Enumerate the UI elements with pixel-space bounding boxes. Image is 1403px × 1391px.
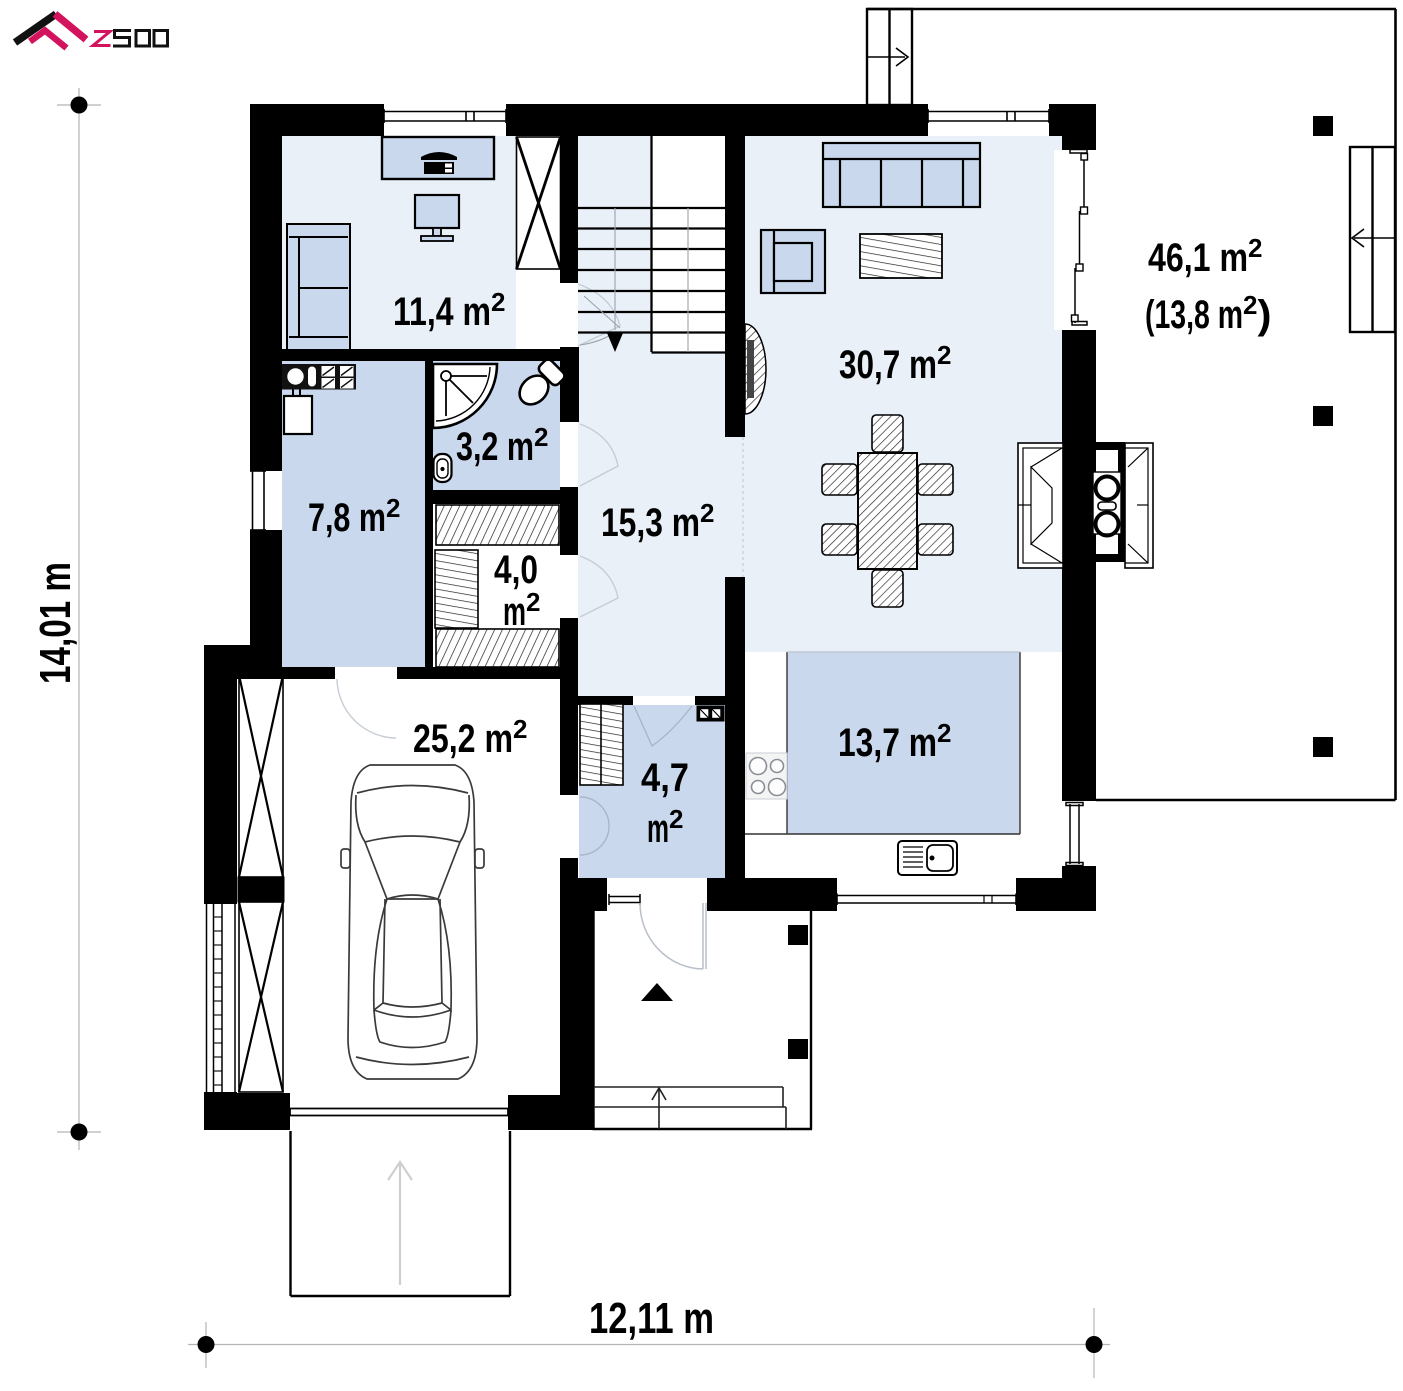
svg-text:11,4 m2: 11,4 m2 bbox=[393, 287, 505, 334]
svg-text:4,0: 4,0 bbox=[494, 548, 538, 592]
svg-text:30,7 m2: 30,7 m2 bbox=[839, 340, 951, 387]
svg-text:14,01 m: 14,01 m bbox=[31, 562, 80, 684]
svg-text:15,3 m2: 15,3 m2 bbox=[601, 498, 714, 545]
svg-text:46,1 m2: 46,1 m2 bbox=[1148, 233, 1262, 280]
svg-text:25,2 m2: 25,2 m2 bbox=[413, 714, 527, 761]
svg-text:4,7: 4,7 bbox=[641, 756, 689, 800]
svg-text:12,11 m: 12,11 m bbox=[589, 1294, 714, 1343]
svg-text:13,7 m2: 13,7 m2 bbox=[838, 718, 951, 765]
